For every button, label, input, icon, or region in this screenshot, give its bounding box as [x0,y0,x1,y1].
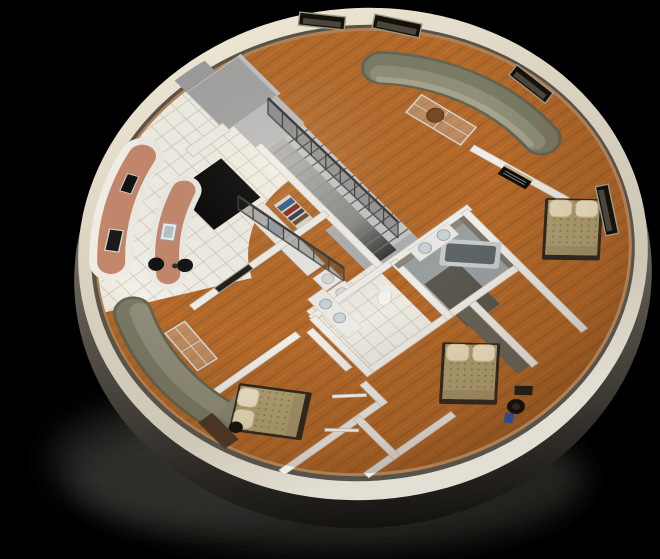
render-canvas [0,0,660,559]
dome-floorplan-render [0,0,660,559]
